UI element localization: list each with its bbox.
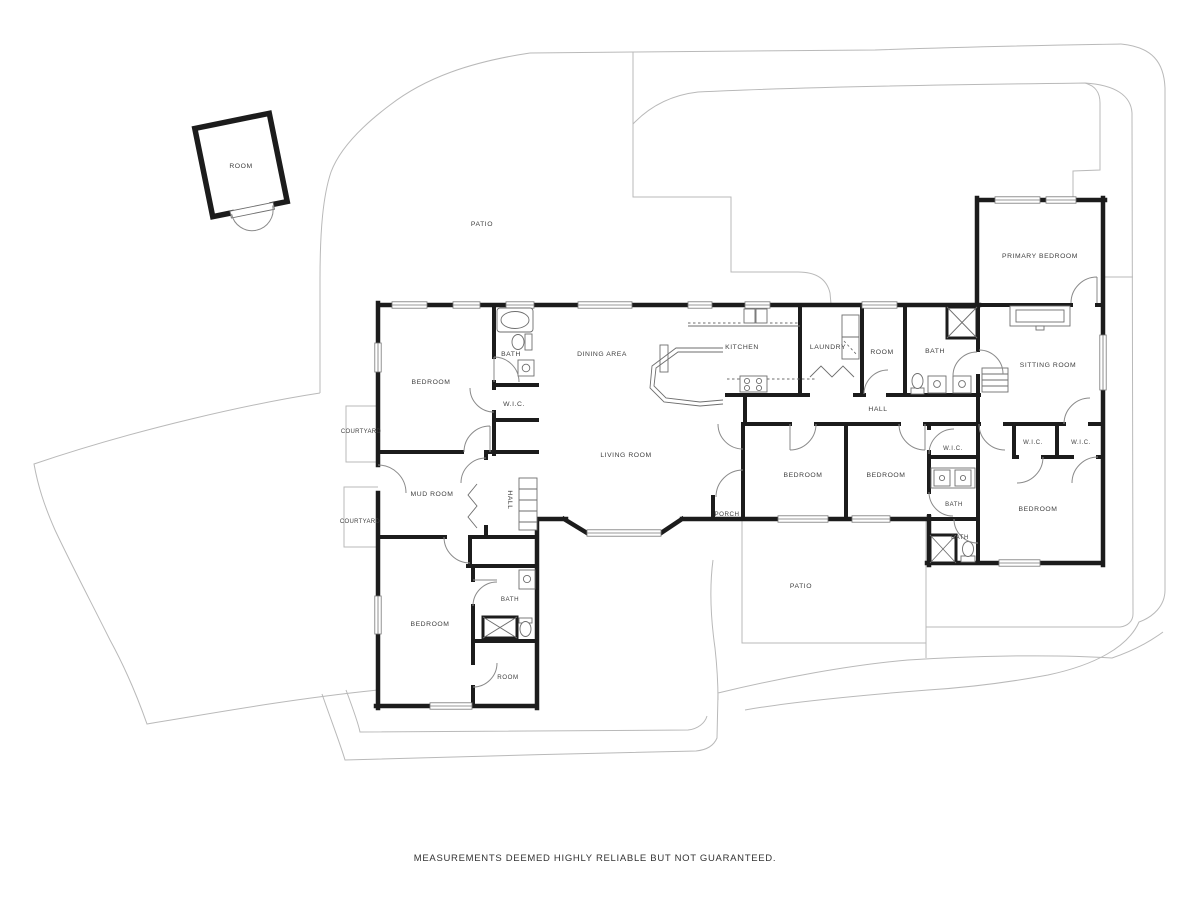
patio-bottom-outline — [742, 521, 926, 643]
room-label-patio-top: PATIO — [471, 221, 493, 228]
hearth — [1010, 306, 1070, 330]
window — [778, 516, 828, 522]
disclaimer-text: MEASUREMENTS DEEMED HIGHLY RELIABLE BUT … — [414, 853, 776, 864]
room-label-bedroom-s2: BEDROOM — [867, 472, 906, 479]
courtyard-lower-outline — [344, 487, 378, 547]
floor-plan-page: ROOM PATIO BEDROOM BATH W.I.C. DINING AR… — [0, 0, 1200, 900]
toilet — [961, 542, 975, 563]
room-label-kitchen: KITCHEN — [725, 344, 759, 351]
window — [862, 302, 897, 308]
toilet — [519, 618, 532, 637]
bay-window — [587, 530, 661, 536]
room-label-hall-west: HALL — [506, 490, 513, 509]
window — [375, 596, 381, 634]
laundry-bifold-doors — [810, 366, 854, 377]
room-label-sitting-room: SITTING ROOM — [1020, 362, 1076, 369]
room-label-bedroom-sw: BEDROOM — [411, 621, 450, 628]
window — [430, 703, 472, 709]
washer-dryer — [842, 315, 859, 359]
sink — [518, 360, 534, 376]
window — [375, 343, 381, 372]
room-label-bath-se: BATH — [951, 535, 969, 541]
sitting-closet — [982, 368, 1008, 392]
window — [688, 302, 712, 308]
room-label-bedroom-s1: BEDROOM — [784, 472, 823, 479]
dining-cabinet — [660, 345, 668, 372]
room-label-courtyard-upper: COURTYARD — [341, 429, 382, 435]
floor-plan-svg: ROOM PATIO BEDROOM BATH W.I.C. DINING AR… — [0, 0, 1200, 900]
hall-linen-closet — [519, 478, 537, 530]
room-label-detached-room: ROOM — [229, 163, 252, 170]
room-label-hall-main: HALL — [868, 406, 887, 413]
toilet — [911, 374, 924, 395]
room-label-room-n: ROOM — [870, 349, 893, 356]
room-label-porch: PORCH — [714, 511, 739, 518]
window — [745, 302, 770, 308]
kitchen-sink — [744, 309, 767, 323]
sink — [953, 376, 971, 393]
room-label-bedroom-se: BEDROOM — [1019, 506, 1058, 513]
room-label-laundry: LAUNDRY — [810, 344, 846, 351]
double-vanity — [931, 468, 975, 488]
property-boundary-lines — [34, 44, 1165, 760]
room-label-wic-se2: W.I.C. — [1071, 440, 1091, 446]
window — [578, 302, 632, 308]
window — [506, 302, 534, 308]
room-label-bath-center: BATH — [945, 502, 963, 508]
window — [999, 560, 1040, 566]
room-label-wic-center: W.I.C. — [943, 446, 963, 452]
room-label-wic-se1: W.I.C. — [1023, 440, 1043, 446]
room-label-bedroom-nw: BEDROOM — [412, 379, 451, 386]
window — [1100, 335, 1106, 390]
interior-walls — [378, 305, 1103, 706]
room-label-wic-n: W.I.C. — [503, 401, 525, 408]
room-label-primary-bedroom: PRIMARY BEDROOM — [1002, 253, 1078, 260]
toilet — [512, 334, 532, 350]
window — [852, 516, 890, 522]
detached-room-structure — [195, 113, 292, 238]
window — [1046, 197, 1076, 203]
window — [392, 302, 427, 308]
window — [453, 302, 480, 308]
sink — [928, 376, 946, 393]
room-label-bath-n: BATH — [501, 351, 521, 358]
window — [995, 197, 1040, 203]
mudroom-bifold-doors — [468, 484, 477, 528]
cooktop — [740, 376, 767, 392]
room-label-patio-bottom: PATIO — [790, 583, 812, 590]
room-label-bath-sw: BATH — [501, 596, 519, 603]
room-label-room-sw: ROOM — [497, 674, 518, 681]
room-label-living-room: LIVING ROOM — [600, 452, 651, 459]
sink — [519, 570, 535, 589]
room-label-courtyard-lower: COURTYARD — [340, 519, 381, 525]
room-label-dining-area: DINING AREA — [577, 351, 627, 358]
room-label-mud-room: MUD ROOM — [411, 491, 454, 498]
room-label-bath-ne: BATH — [925, 348, 945, 355]
